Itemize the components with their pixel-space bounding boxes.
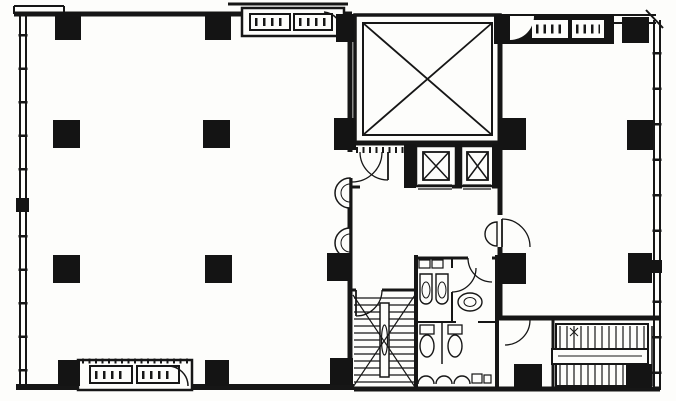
column [205, 12, 231, 40]
floor-plan-canvas: Office building typical floor plan (scan… [0, 0, 676, 401]
fan-coil-unit-bottom-left [78, 360, 192, 390]
column [627, 120, 653, 150]
elevator-jamb [455, 144, 462, 188]
fan-coil-unit-top-right [506, 14, 614, 44]
column [205, 255, 232, 283]
column [622, 17, 649, 43]
floor-plan-scan: Office building typical floor plan (scan… [0, 0, 676, 401]
wall-nub [16, 198, 29, 212]
column [628, 253, 652, 283]
column [327, 253, 351, 281]
column [494, 14, 510, 44]
fan-coil-unit-top-center [228, 4, 348, 36]
column [55, 12, 81, 40]
column [205, 360, 229, 386]
column [334, 118, 356, 150]
column [58, 360, 80, 386]
column [53, 120, 80, 148]
column [330, 358, 353, 385]
column [498, 118, 526, 150]
column [203, 120, 230, 148]
elevator-jamb [404, 144, 416, 188]
elevator-jamb [492, 144, 500, 188]
column [53, 255, 80, 283]
wall-nub [651, 260, 662, 273]
column [626, 364, 652, 388]
column [498, 253, 526, 284]
column [336, 14, 354, 42]
column [514, 364, 542, 390]
